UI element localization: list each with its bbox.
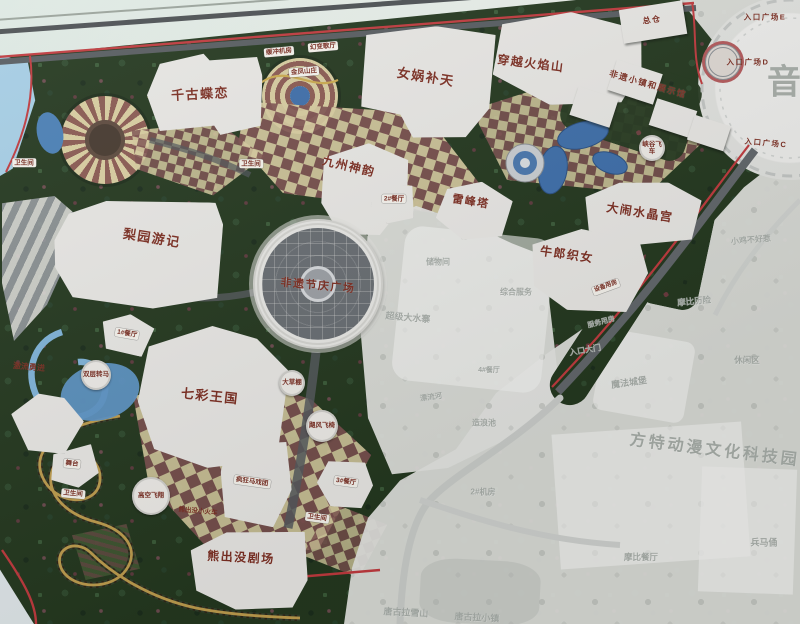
label-jiuzhou-shenyun: 九州神韵 (321, 152, 377, 181)
label-danao-shuijinggong: 大闹水晶宫 (605, 198, 674, 225)
label-entrance-plaza-e: 入口广场E (744, 12, 787, 23)
label-leifengta: 雷峰塔 (451, 190, 491, 212)
label-entrance-plaza-c: 入口广场C (744, 136, 788, 151)
label-qicai-wangguo: 七彩王国 (180, 383, 240, 408)
label-xiongchumo-juchang: 熊出没剧场 (207, 547, 275, 568)
label-chuanyue-huoyanshan: 穿越火焰山 (496, 50, 565, 75)
major-label-layer: 千古蝶恋女娲补天穿越火焰山九州神韵雷峰塔大闹水晶宫牛郎织女梨园游记非遗节庆广场七… (0, 0, 800, 624)
label-entrance-plaza-d: 入口广场D (727, 57, 770, 68)
label-zongcang: 总仓 (642, 13, 662, 27)
label-nuwa-butian: 女娲补天 (396, 62, 456, 90)
label-feiyi-jieqing-plaza: 非遗节庆广场 (280, 274, 356, 296)
label-feiyi-xiaozhen: 非遗小镇和展示馆 (608, 67, 688, 101)
label-liyuan-youji: 梨园游记 (122, 223, 182, 251)
park-map-photo: 储物间综合服务超级大水寨4#餐厅漂流河造浪池2#机房唐古拉雪山唐古拉小镇小鸡不好… (0, 0, 800, 624)
label-qiangu-dielian: 千古蝶恋 (171, 82, 230, 104)
label-niulang-zhinv: 牛郎织女 (539, 242, 595, 266)
